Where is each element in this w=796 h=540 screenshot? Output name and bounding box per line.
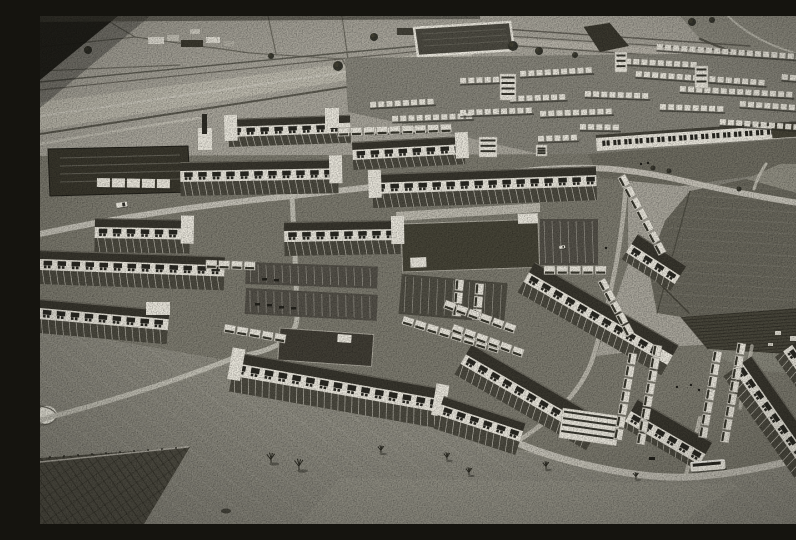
aerial-photo-canvas xyxy=(40,16,796,524)
film-grain xyxy=(40,16,796,524)
aerial-photo xyxy=(40,16,796,524)
